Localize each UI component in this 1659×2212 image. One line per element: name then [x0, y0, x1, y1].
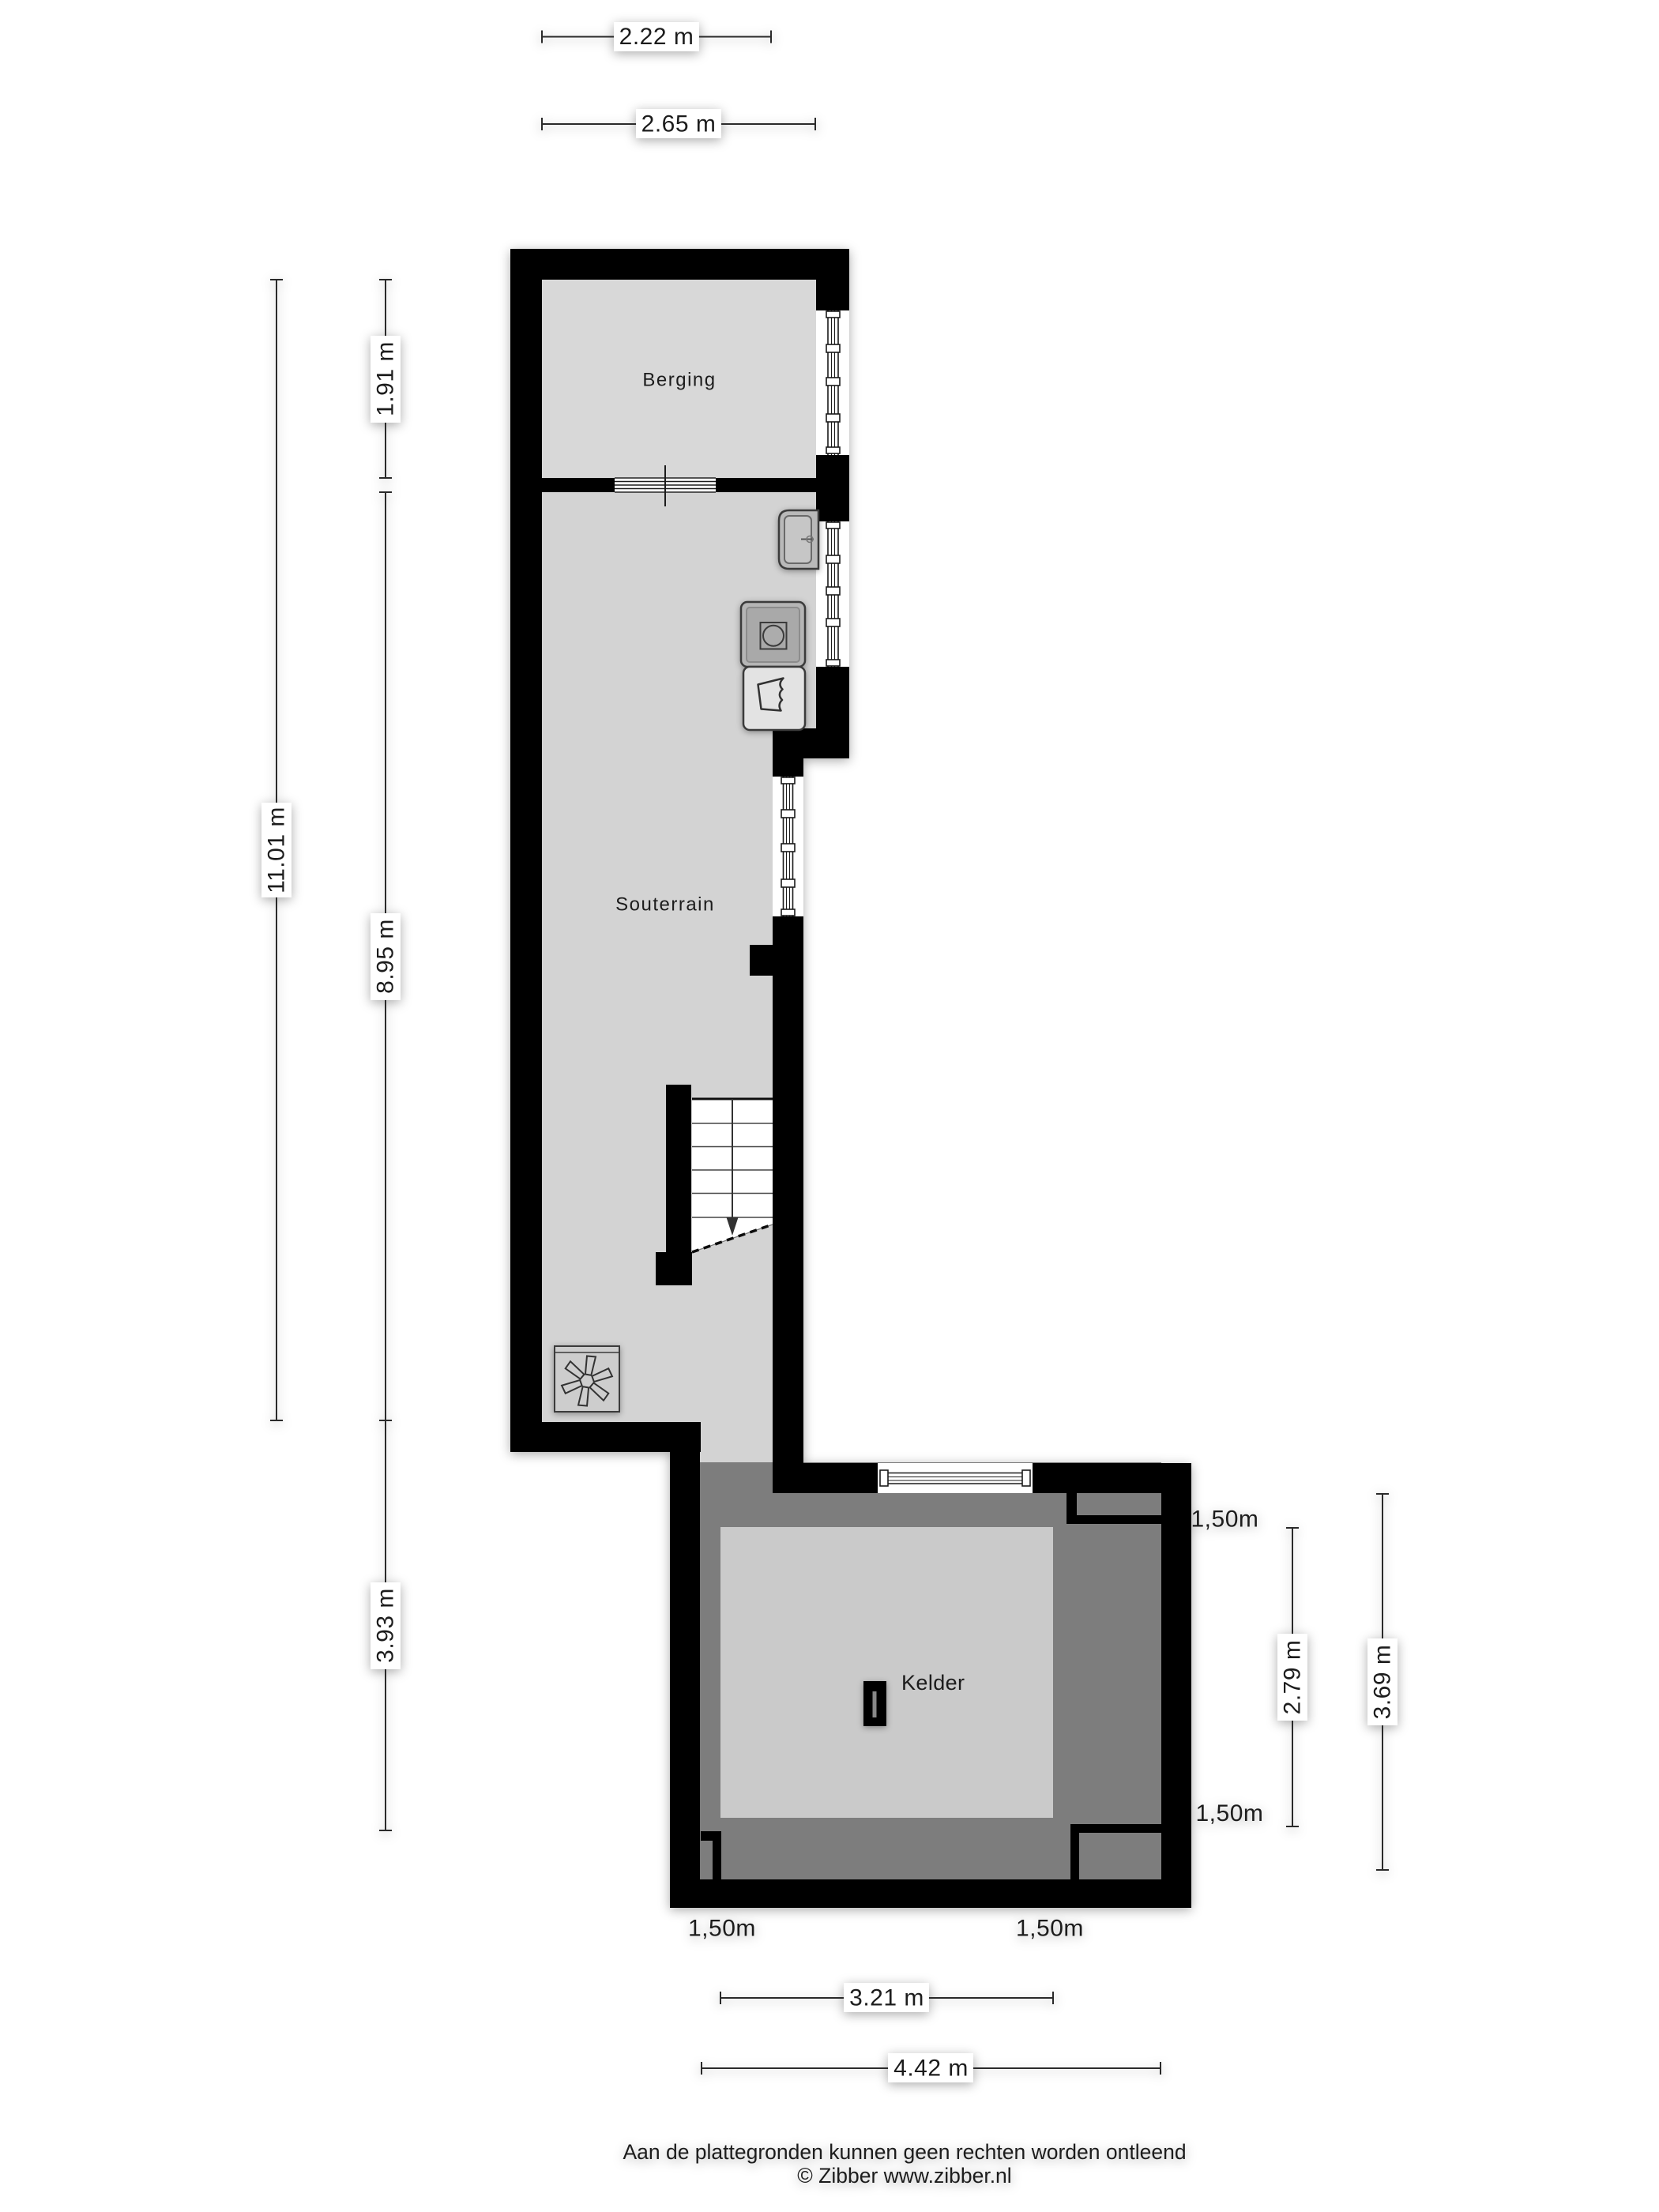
- svg-text:© Zibber www.zibber.nl: © Zibber www.zibber.nl: [797, 2164, 1011, 2188]
- svg-text:2.22 m: 2.22 m: [619, 24, 694, 50]
- svg-text:1,50m: 1,50m: [1016, 1916, 1084, 1942]
- svg-text:1.91 m: 1.91 m: [373, 341, 399, 416]
- svg-text:1,50m: 1,50m: [688, 1916, 756, 1942]
- svg-text:2.79 m: 2.79 m: [1280, 1640, 1306, 1715]
- svg-text:3.21 m: 3.21 m: [849, 1985, 924, 2011]
- svg-text:4.42 m: 4.42 m: [893, 2056, 969, 2082]
- svg-text:8.95 m: 8.95 m: [373, 919, 399, 994]
- svg-text:Aan de plattegronden kunnen ge: Aan de plattegronden kunnen geen rechten…: [623, 2140, 1186, 2164]
- svg-text:Kelder: Kelder: [901, 1671, 965, 1695]
- svg-text:3.93 m: 3.93 m: [373, 1588, 399, 1663]
- svg-text:1,50m: 1,50m: [1196, 1800, 1264, 1826]
- svg-text:Souterrain: Souterrain: [615, 894, 715, 916]
- svg-text:Berging: Berging: [642, 370, 716, 391]
- svg-text:2.65 m: 2.65 m: [641, 111, 717, 137]
- svg-text:3.69 m: 3.69 m: [1370, 1645, 1396, 1720]
- svg-text:11.01 m: 11.01 m: [264, 807, 290, 893]
- svg-text:1,50m: 1,50m: [1191, 1507, 1259, 1533]
